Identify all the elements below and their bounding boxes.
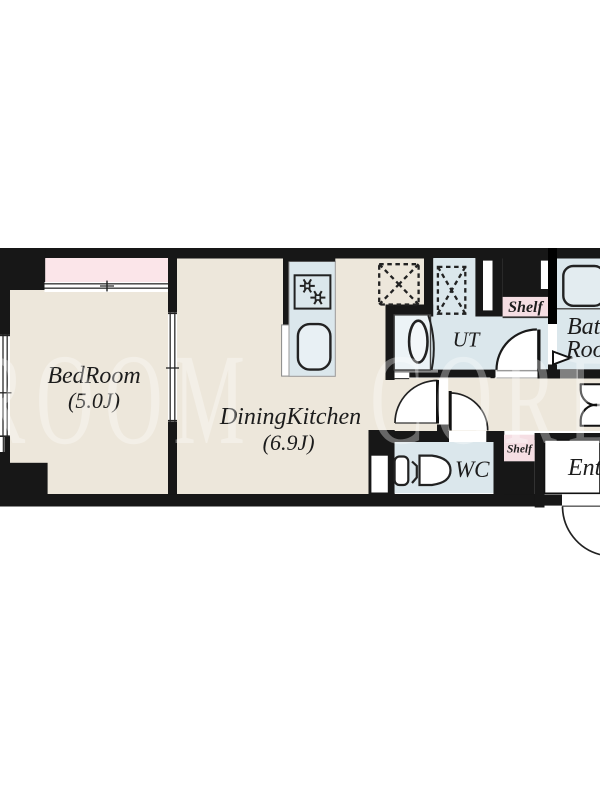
svg-text:(6.9J): (6.9J) <box>263 430 315 455</box>
svg-text:Shelf: Shelf <box>508 299 544 316</box>
svg-text:ROOM: ROOM <box>0 329 255 472</box>
svg-text:CORE: CORE <box>370 329 600 472</box>
